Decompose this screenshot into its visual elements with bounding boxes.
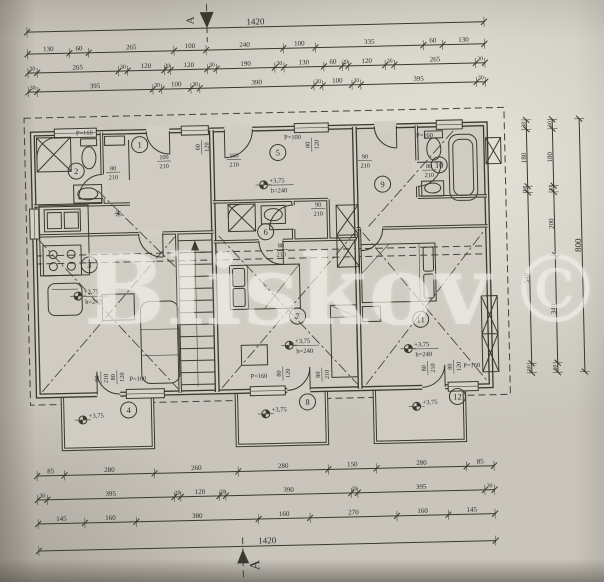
window-parapet-label: P=160	[416, 132, 433, 139]
dimension-value: 30	[209, 62, 215, 68]
dimension-value: 20	[175, 490, 181, 496]
dimension-value: 20	[523, 186, 529, 192]
room-number: 2	[74, 166, 78, 176]
dimension-value: 335	[364, 38, 375, 46]
room-height-value: h=240	[271, 187, 288, 194]
dimension-value: 120	[184, 61, 195, 69]
opening-width: 90	[315, 202, 321, 209]
dimension-value: 190	[240, 60, 251, 68]
dimension-value: 160	[417, 507, 428, 515]
section-marker-top: A	[184, 4, 214, 43]
dimension-value: 130	[43, 45, 54, 53]
opening-height: 210	[430, 363, 437, 372]
window-parapet-label: P=100	[284, 134, 301, 141]
label-text: P=160	[463, 362, 480, 369]
room-number: 8	[305, 397, 309, 407]
window	[181, 126, 208, 136]
window	[294, 123, 328, 133]
opening-width: 100	[229, 152, 238, 159]
level-value: +3,75	[269, 177, 284, 184]
label-text: P=100	[284, 134, 301, 141]
level-value: +3,75	[89, 413, 104, 420]
dimension-value: 800	[573, 238, 583, 252]
dimension-value: 30	[387, 58, 393, 64]
opening-width: 80	[426, 163, 432, 170]
dimension-value: 30	[30, 85, 36, 91]
dimension-value: 180	[520, 152, 528, 163]
room-number: 6	[263, 227, 267, 237]
dimension-value: 30	[154, 83, 160, 89]
opening-height: 210	[425, 172, 434, 179]
terrace-4-interior	[62, 393, 153, 449]
dim-top-row1: 1306026510024010033560130	[24, 35, 487, 59]
level-value: +3,75	[422, 399, 437, 406]
label-text: P=160	[250, 373, 267, 380]
opening-width: 100	[159, 154, 168, 161]
dimension-value: 60	[75, 44, 83, 52]
dim-right-overall: 800	[570, 116, 590, 375]
dimension-value: 270	[348, 508, 359, 516]
dimension-value: 260	[191, 464, 202, 472]
opening-width: 80	[447, 363, 454, 369]
opening-height: 120	[456, 362, 463, 371]
electrical-symbols: ✳	[114, 209, 123, 220]
terrace-12-interior	[374, 386, 465, 442]
dimension-value: 145	[466, 506, 477, 514]
dimension-value: 265	[126, 43, 137, 51]
dimension-value: 280	[104, 466, 115, 474]
dim-bottom-row2: 3039520120203902039530	[34, 481, 497, 505]
level-value: +3,75	[414, 341, 429, 348]
opening-width: 90	[362, 153, 368, 160]
opening-width: 80	[421, 365, 428, 371]
room-height-value: h=240	[415, 351, 432, 358]
room-number: 5	[276, 147, 280, 157]
dimension-value: 280	[278, 462, 289, 470]
dimension-value: 240	[239, 41, 250, 49]
dimension-value: 30	[120, 64, 126, 70]
dimension-value: 60	[429, 36, 437, 44]
room-number: 12	[453, 391, 462, 401]
room-number: 7	[295, 311, 299, 321]
dimension-value: 265	[72, 63, 83, 71]
window-parapet-label: P=160	[76, 130, 93, 137]
dimension-value: 20	[352, 486, 358, 492]
room-number: 1	[137, 140, 141, 150]
dim-bottom-overall: 1420	[36, 530, 499, 556]
dimension-value: 30	[353, 78, 359, 84]
window	[30, 209, 40, 239]
opening-height: 210	[229, 161, 238, 168]
label-text: P=160	[130, 376, 147, 383]
window	[126, 389, 164, 399]
dimension-value: 120	[361, 57, 372, 65]
dimension-value: 1420	[246, 16, 265, 26]
level-value: +3,75	[295, 338, 310, 345]
room-height-value: h=240	[296, 348, 313, 355]
opening-width: 80	[94, 375, 101, 381]
dimension-value: 20	[549, 186, 555, 192]
dimension-value: 395	[413, 75, 424, 83]
opening-height: 210	[314, 211, 323, 218]
window-parapet-label: P=160	[463, 362, 480, 369]
photographed-floor-plan-sheet: A A 142013060265100240100335601303026530…	[0, 0, 604, 582]
opening-height: 210	[360, 162, 369, 169]
dimension-value: 20	[164, 63, 170, 69]
dimension-value: 30	[477, 56, 483, 62]
dimension-value: 130	[299, 58, 310, 66]
dimension-value: 100	[294, 39, 305, 47]
opening-width: 80	[110, 374, 117, 380]
terrace-8-interior	[236, 389, 327, 445]
opening-width: 80	[278, 242, 284, 249]
opening-height: 120	[314, 140, 321, 149]
dimension-value: 20	[220, 489, 226, 495]
opening-height: 210	[324, 370, 331, 379]
dim-bottom-row3: 145160380160270160145	[35, 505, 498, 529]
dimension-value: 30	[478, 75, 484, 81]
dimension-value: 160	[279, 510, 290, 518]
dim-top-row3: 303953010030390301003039530	[25, 73, 488, 97]
opening-width: 60	[195, 144, 202, 150]
dimension-value: 280	[416, 459, 427, 467]
dimension-value: 1420	[258, 535, 277, 545]
dimension-value: 200	[547, 218, 555, 229]
light-point-symbol: ✳	[114, 209, 123, 220]
opening-height: 210	[159, 163, 168, 170]
dimension-value: 540	[523, 272, 531, 283]
opening-height: 120	[119, 372, 126, 381]
dimension-value: 30	[192, 82, 198, 88]
dimension-value: 120	[195, 488, 206, 496]
room-number: 10	[435, 160, 444, 170]
section-label-bottom: A	[248, 559, 263, 570]
dimension-value: 30	[39, 493, 45, 499]
dim-right-middle: 301802020034030	[545, 116, 563, 375]
dimension-value: 60	[329, 58, 337, 66]
label-text: P=160	[416, 132, 433, 139]
dimension-value: 30	[315, 79, 321, 85]
dimension-value: 100	[332, 77, 343, 85]
dimension-value: 265	[430, 55, 441, 63]
dimension-value: 85	[477, 457, 485, 465]
dim-bottom-row1: 8528026028015028085	[34, 457, 497, 481]
window-parapet-label: P=160	[250, 373, 267, 380]
dim-right-inner: 301802054030	[519, 117, 537, 376]
dimension-value: 20	[342, 59, 348, 65]
room-number: 9	[380, 179, 384, 189]
level-value: +3,75	[84, 289, 99, 296]
window	[250, 386, 285, 396]
dimension-value: 395	[90, 82, 101, 90]
dimension-value: 380	[192, 512, 203, 520]
dimension-value: 130	[458, 36, 469, 44]
window	[436, 120, 462, 130]
dimension-value: 180	[546, 151, 554, 162]
dimension-value: 30	[30, 66, 36, 72]
opening-height: 120	[204, 142, 211, 151]
dimension-value: 120	[141, 62, 152, 70]
dimension-value: 30	[527, 365, 533, 371]
dimension-value: 150	[347, 460, 358, 468]
opening-width: 80	[305, 142, 312, 148]
dimension-value: 340	[549, 303, 557, 314]
dimension-value: 30	[487, 483, 493, 489]
section-label-top: A	[185, 16, 197, 24]
dimension-value: 145	[56, 515, 67, 523]
level-value: +3,75	[272, 406, 287, 413]
dimension-value: 395	[416, 483, 427, 491]
opening-width: 80	[315, 371, 322, 377]
floor-plan-drawing: A A 142013060265100240100335601303026530…	[0, 0, 604, 582]
dim-top-overall: 1420	[24, 11, 487, 37]
dimension-value: 85	[47, 467, 55, 475]
dimension-value: 390	[251, 78, 262, 86]
label-text: P=160	[76, 130, 93, 137]
room-number: 3	[87, 260, 91, 270]
dimension-value: 30	[521, 122, 527, 128]
room-number: 11	[416, 314, 424, 324]
opening-height: 210	[109, 174, 118, 181]
opening-height: 210	[276, 251, 285, 258]
dimension-value: 395	[105, 490, 116, 498]
dimension-value: 30	[553, 364, 559, 370]
dimension-value: 100	[185, 42, 196, 50]
window-parapet-label: P=160	[130, 376, 147, 383]
dimension-value: 30	[547, 121, 553, 127]
opening-width: 80	[276, 370, 283, 376]
dimension-value: 390	[283, 486, 294, 494]
dimension-value: 30	[276, 61, 282, 67]
dimension-value: 100	[171, 80, 182, 88]
opening-width: 80	[110, 165, 116, 172]
room-height-value: h=240	[85, 299, 102, 306]
opening-height: 120	[285, 369, 292, 378]
dimension-value: 160	[105, 514, 116, 522]
